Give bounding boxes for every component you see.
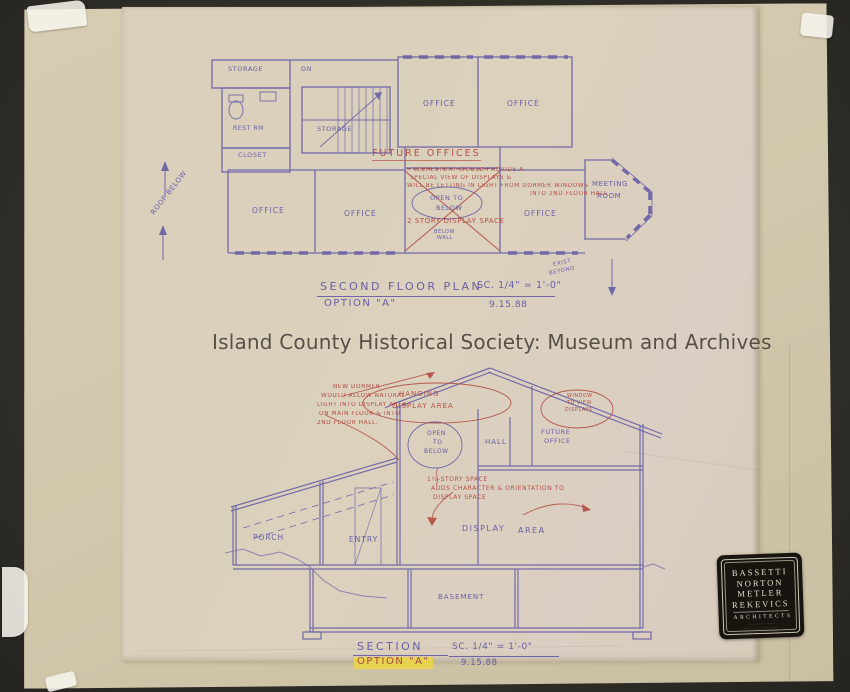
- display-area-label: AREA: [518, 527, 546, 535]
- photographed-drawing: STORAGE DN STORAGE REST RM CLOSET OFFICE…: [0, 0, 850, 692]
- room-label-meeting: MEETING: [592, 181, 628, 188]
- entry-label: ENTRY: [349, 536, 378, 544]
- hanging-display-label: HANGING: [399, 391, 439, 398]
- story-space-note-line: 1½-STORY SPACE: [427, 477, 488, 483]
- open-to-below-label: OPEN TO: [430, 195, 463, 202]
- floor-plan-linework: [140, 45, 680, 297]
- room-label-closet: CLOSET: [238, 152, 267, 159]
- story-space-note-line: DISPLAY SPACE: [433, 495, 486, 501]
- basement-label: BASEMENT: [438, 594, 484, 601]
- hall-label: HALL: [485, 439, 507, 446]
- window-view-label: WINDOW: [567, 394, 593, 399]
- room-label-office: OFFICE: [524, 210, 557, 218]
- room-label-office: OFFICE: [252, 207, 285, 215]
- two-story-display-note: 2 STORY DISPLAY SPACE: [407, 218, 505, 225]
- stair-dn-label: DN: [301, 66, 312, 73]
- section-open-below-label: TO: [433, 440, 443, 446]
- section-scale: SC. 1/4" = 1'-0": [452, 643, 533, 652]
- room-label-stair-storage: STORAGE: [317, 126, 352, 133]
- stamp-border: BASSETTI NORTON METLER REKEVICS ARCHITEC…: [721, 557, 801, 636]
- dormer-note-line: ON MAIN FLOOR & INTO: [319, 411, 400, 417]
- room-label-office: OFFICE: [423, 100, 456, 108]
- stamp-profession: ARCHITECTS: [733, 610, 788, 621]
- title-underline: [317, 296, 555, 297]
- tape-bottom-left-edge: [2, 567, 28, 637]
- clerestory-note-line: WILL BE LETTING IN LIGHT FROM DORMER WIN…: [407, 183, 589, 189]
- below-wall-note: WALL: [437, 236, 453, 241]
- room-label-rest-rm: REST RM: [233, 126, 264, 132]
- archive-watermark: Island County Historical Society: Museum…: [212, 330, 772, 354]
- architect-stamp: BASSETTI NORTON METLER REKEVICS ARCHITEC…: [717, 553, 805, 640]
- porch-label: PORCH: [253, 534, 284, 542]
- room-label-office: OFFICE: [344, 210, 377, 218]
- floor-plan-scale: SC. 1/4" = 1'-0": [477, 281, 561, 291]
- section-scale-underline: [449, 656, 559, 657]
- future-offices-heading: FUTURE OFFICES: [372, 149, 481, 161]
- stamp-content: BASSETTI NORTON METLER REKEVICS ARCHITEC…: [724, 560, 797, 632]
- clerestory-note-line: SPECIAL VIEW OF DISPLAYS &: [410, 175, 512, 181]
- section-title: SECTION: [357, 641, 423, 653]
- stamp-fine-print: ···· ······· ······ ······· ·········· ·…: [727, 621, 796, 635]
- room-label-storage: STORAGE: [228, 66, 263, 73]
- floor-plan-title: SECOND FLOOR PLAN: [320, 281, 482, 293]
- floor-plan-date: 9.15.88: [489, 301, 528, 310]
- section-open-below-label: BELOW: [424, 449, 449, 455]
- story-space-note-line: ADDS CHARACTER & ORIENTATION TO: [431, 486, 564, 492]
- future-office-label: FUTURE: [541, 429, 570, 436]
- future-office-label: OFFICE: [544, 438, 571, 445]
- window-view-label: DISPLAYS: [565, 408, 593, 413]
- window-view-label: TO VIEW: [567, 401, 592, 406]
- open-to-below-label: BELOW: [436, 205, 463, 212]
- clerestory-note-line: CLERESTORY WOULD PROVIDE A: [413, 167, 524, 173]
- hanging-display-label: DISPLAY AREA: [392, 403, 454, 410]
- dormer-note-line: NEW DORMER: [333, 384, 380, 390]
- dormer-note-line: 2ND FLOOR HALL.: [317, 420, 378, 426]
- clerestory-note-line: INTO 2ND FLOOR HALL: [530, 191, 608, 197]
- section-open-below-label: OPEN: [427, 431, 446, 437]
- room-label-office: OFFICE: [507, 100, 540, 108]
- tape-top-right: [800, 12, 834, 38]
- dormer-note-line: WOULD ALLOW NATURAL: [321, 393, 405, 399]
- section-date: 9.15.88: [461, 659, 498, 668]
- section-option-highlighted: OPTION "A": [354, 657, 433, 669]
- stamp-name-line: REKEVICS: [726, 597, 795, 610]
- display-area-label: DISPLAY: [462, 525, 505, 533]
- floor-plan-option: OPTION "A": [324, 299, 397, 310]
